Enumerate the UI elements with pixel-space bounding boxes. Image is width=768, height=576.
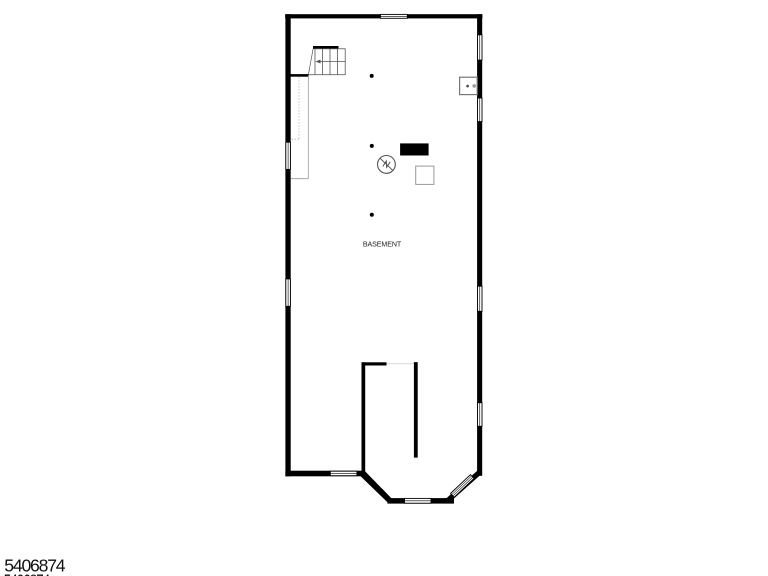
- svg-text:BASEMENT: BASEMENT: [363, 241, 402, 249]
- svg-text:5406874: 5406874: [4, 571, 51, 576]
